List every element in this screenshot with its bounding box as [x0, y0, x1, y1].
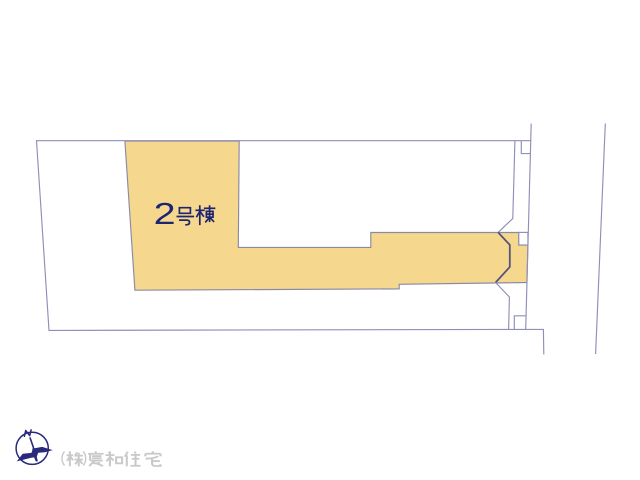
svg-text:2: 2 [154, 196, 176, 231]
